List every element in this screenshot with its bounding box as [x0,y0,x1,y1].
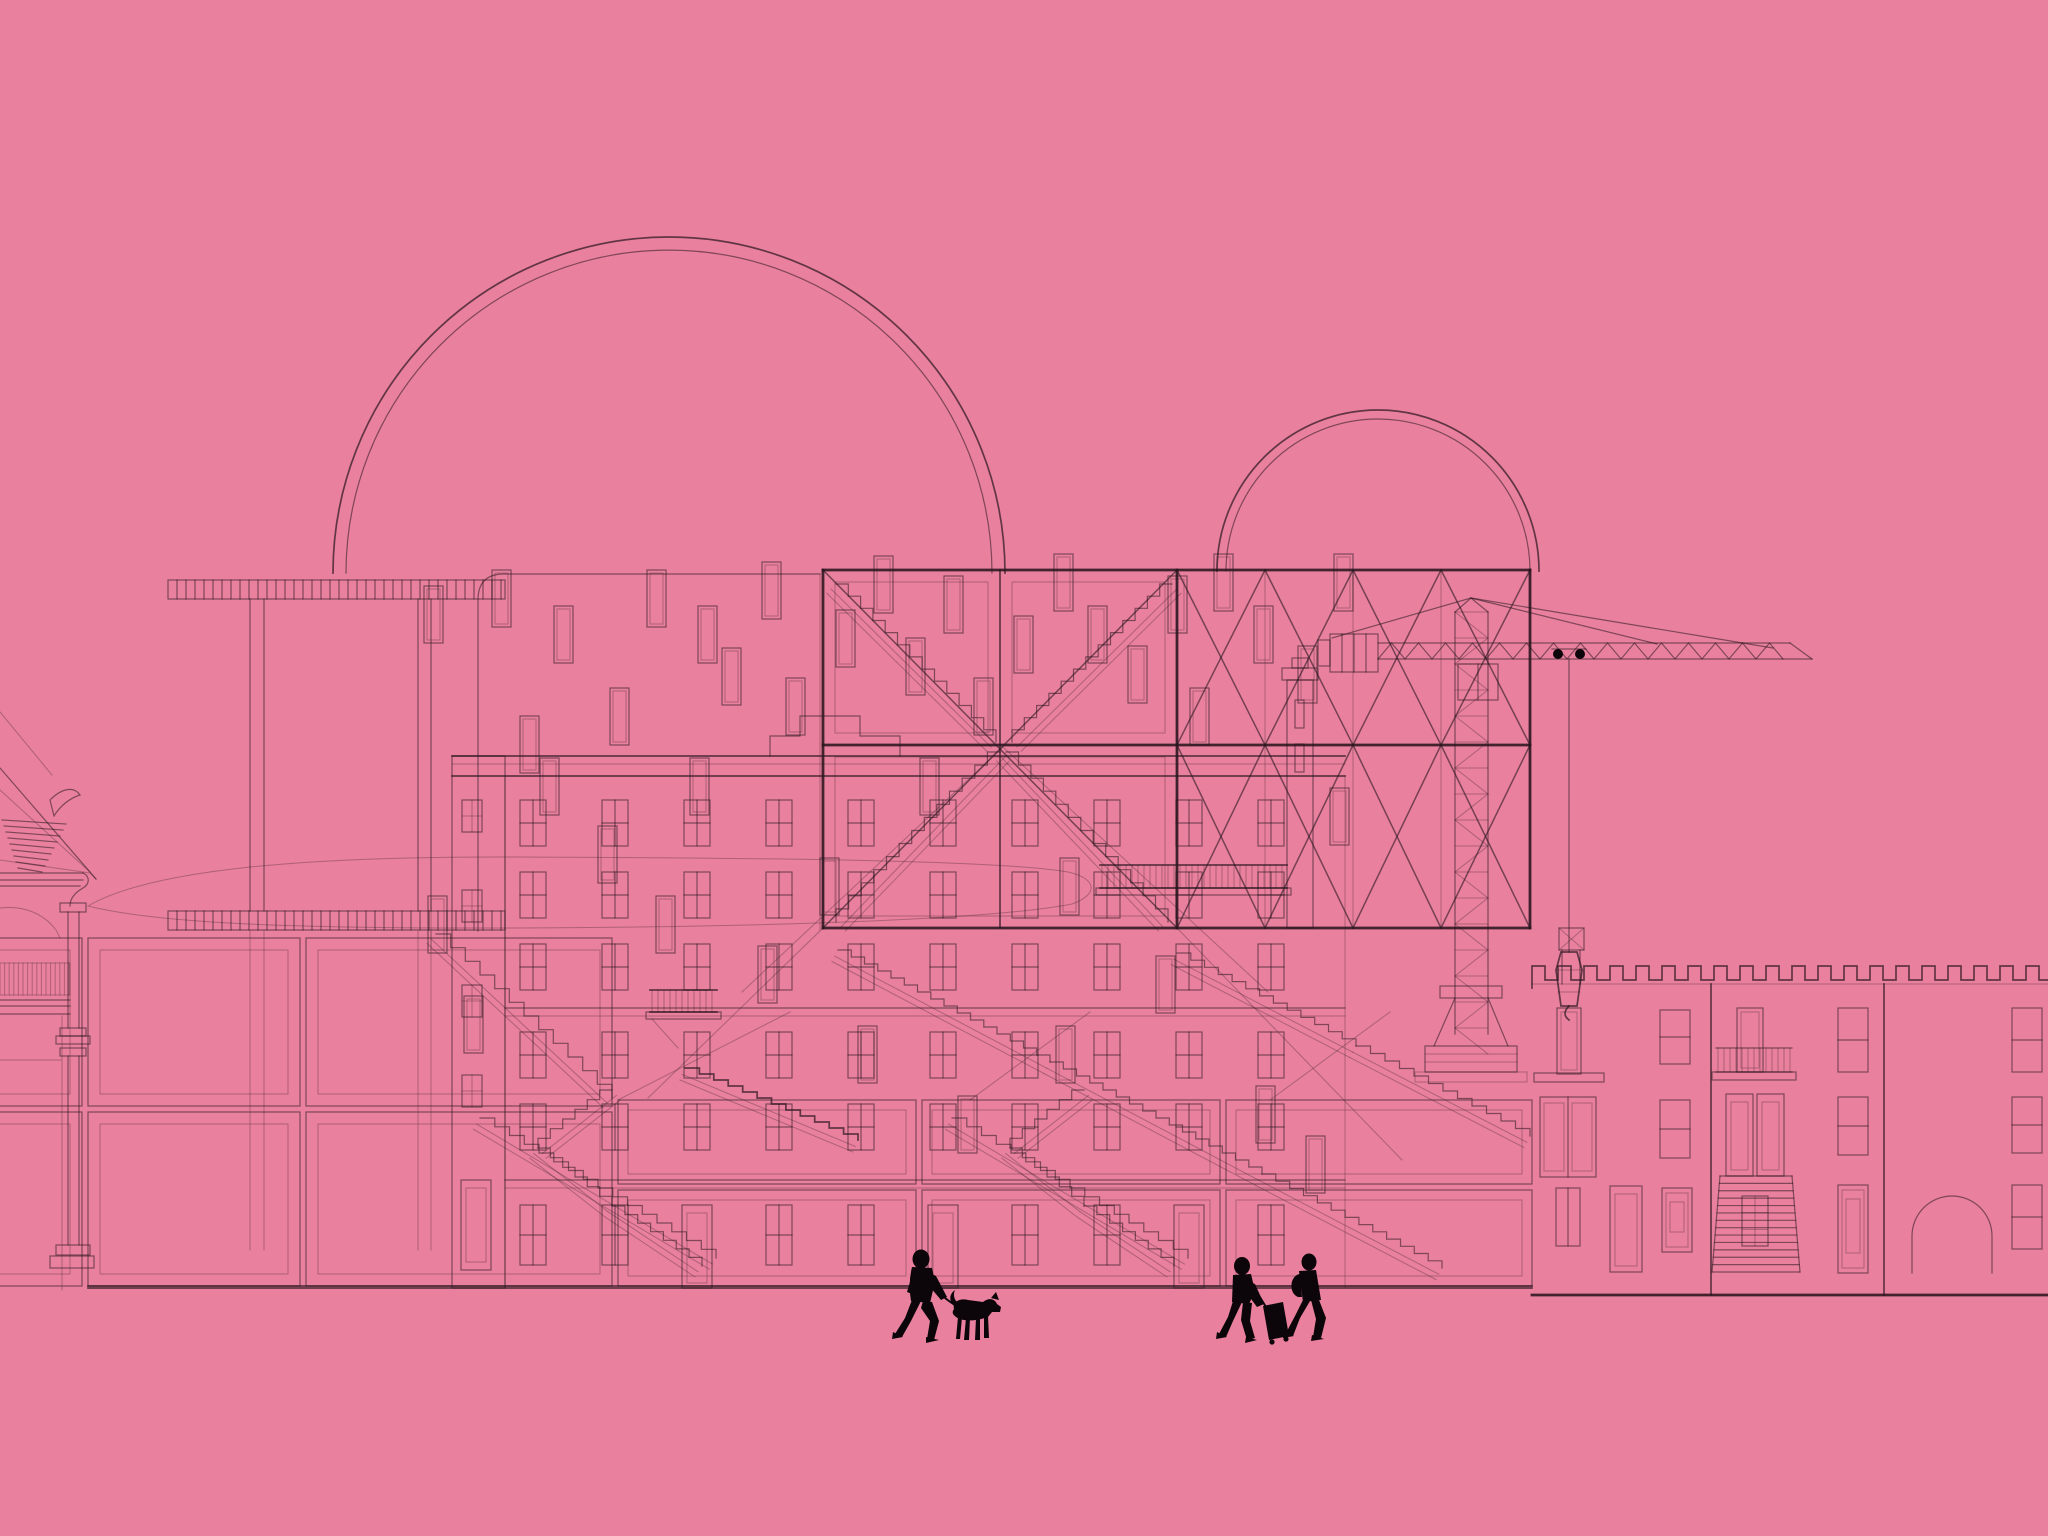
crane-trolley-pulley [1553,649,1563,659]
illustration-canvas [0,0,2048,1536]
head [913,1250,930,1269]
crane-trolley-pulley [1575,649,1585,659]
architectural-collage [0,0,2048,1536]
head [1234,1257,1250,1275]
pink-background [0,0,2048,1536]
head [1302,1254,1317,1271]
